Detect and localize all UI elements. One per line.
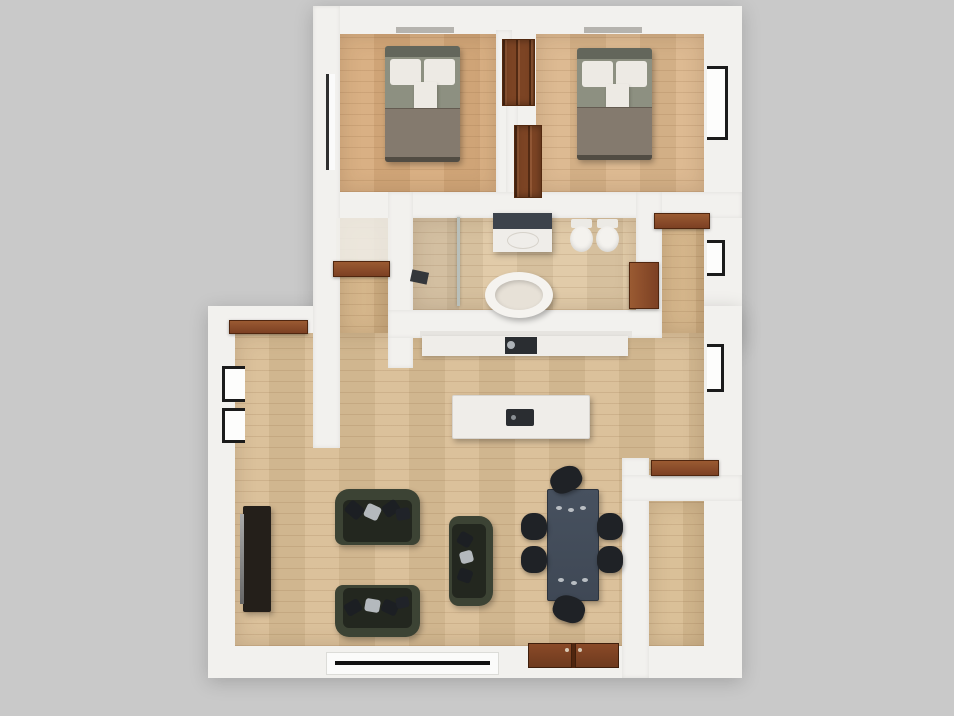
sofa-cushion [395, 507, 411, 521]
bed-headboard [577, 48, 652, 59]
place-setting [580, 506, 586, 510]
bathtub-basin [495, 280, 543, 310]
bedroom-left-door-threshold [336, 218, 390, 262]
door-bathroom[interactable] [629, 262, 659, 309]
window-bottom-large[interactable] [326, 652, 499, 675]
toilet-bowl [570, 226, 593, 252]
wardrobe-right[interactable] [514, 125, 542, 198]
toilet-bowl [596, 226, 619, 252]
place-setting [582, 578, 588, 582]
faucet-icon [507, 341, 515, 349]
dining-table[interactable] [547, 489, 599, 601]
shower-glass-panel[interactable] [457, 217, 460, 306]
floor-plan [0, 0, 954, 716]
bed-frame-rail [385, 157, 460, 162]
bathroom-vanity[interactable] [493, 213, 552, 252]
window-bottom-frame-line [335, 661, 490, 665]
door-handle-icon [578, 648, 582, 652]
wall-entry-top [622, 475, 742, 501]
toilet-2[interactable] [595, 219, 620, 253]
dining-chair[interactable] [597, 546, 623, 573]
door-handle-icon [565, 648, 569, 652]
bathtub[interactable] [485, 272, 553, 318]
window-right-bedroom[interactable] [707, 66, 728, 140]
window-top-right-band [584, 27, 642, 33]
vanity-countertop [493, 213, 552, 229]
tv-screen[interactable] [240, 514, 244, 604]
dining-chair[interactable] [521, 513, 547, 540]
door-entry-room[interactable] [651, 460, 719, 476]
sink-drain-icon [511, 415, 516, 420]
place-setting [571, 581, 577, 585]
bed-headboard [385, 46, 460, 57]
loveseat[interactable] [449, 516, 493, 606]
corridor-floor [662, 218, 704, 334]
entry-door-double[interactable] [528, 643, 619, 668]
wardrobe-left[interactable] [502, 39, 535, 106]
toilet-1[interactable] [569, 219, 594, 253]
kitchen-island[interactable] [452, 395, 590, 439]
vanity-sink [507, 232, 539, 249]
window-left-1[interactable] [222, 366, 245, 402]
door-bedroom-left[interactable] [333, 261, 390, 277]
bed-duvet-lower [577, 107, 652, 160]
window-right-2[interactable] [707, 344, 724, 392]
sofa-cushion [364, 598, 381, 613]
window-bedroom-left-side-sill [329, 74, 335, 170]
bed-duvet-lower [385, 108, 460, 162]
shower-floor-zone [413, 218, 459, 310]
sofa-bottom[interactable] [335, 585, 420, 637]
entry-floor [649, 501, 704, 646]
entry-door-panel-right [575, 643, 619, 668]
dining-chair[interactable] [521, 546, 547, 573]
place-setting [558, 578, 564, 582]
tv-console[interactable] [243, 506, 271, 612]
window-top-left-band [396, 27, 454, 33]
place-setting [556, 506, 562, 510]
place-setting [568, 508, 574, 512]
island-sink [506, 409, 534, 426]
entry-door-panel-left [528, 643, 572, 668]
cooktop[interactable] [505, 337, 537, 354]
bed-right[interactable] [577, 48, 652, 160]
door-living-topleft[interactable] [229, 320, 308, 334]
kitchen-counter[interactable] [422, 336, 628, 356]
window-left-2[interactable] [222, 408, 245, 443]
bed-left[interactable] [385, 46, 460, 162]
sofa-top[interactable] [335, 489, 420, 545]
window-right-1[interactable] [707, 240, 725, 276]
bed-frame-rail [577, 155, 652, 160]
door-bedroom-right[interactable] [654, 213, 710, 229]
dining-chair[interactable] [597, 513, 623, 540]
